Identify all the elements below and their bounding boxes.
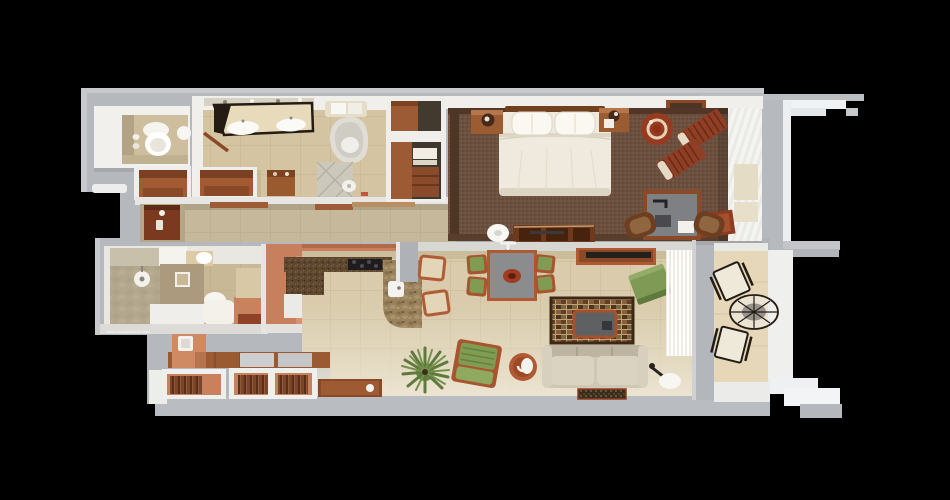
svg-text:www.dreamplans3d.com: www.dreamplans3d.com [106, 329, 150, 334]
